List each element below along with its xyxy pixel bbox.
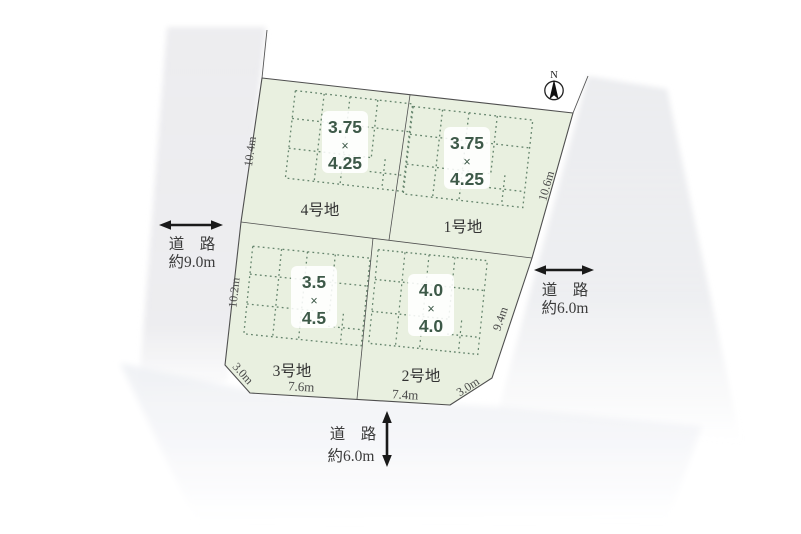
road-left-title: 道 路 xyxy=(169,235,216,253)
plot4-name: 4号地 xyxy=(301,201,340,219)
plot3-name: 3号地 xyxy=(273,362,312,380)
site-plan-canvas: 3.75 × 4.25 3.75 × 4.25 3.5 × 4.5 4.0 × … xyxy=(0,0,801,534)
plot2-name: 2号地 xyxy=(402,367,441,385)
plot3-dim-height: 4.5 xyxy=(302,308,327,328)
plot2-dim-height: 4.0 xyxy=(419,316,444,336)
plot4-dim-width: 3.75 xyxy=(328,117,362,137)
site-plan-diagram: 3.75 × 4.25 3.75 × 4.25 3.5 × 4.5 4.0 × … xyxy=(0,0,801,534)
road-bottom-width: 約6.0m xyxy=(328,447,375,465)
plot1-dim-separator: × xyxy=(463,155,470,169)
plot3-dim-width: 3.5 xyxy=(302,272,327,292)
plot1-dim-width: 3.75 xyxy=(450,133,484,153)
north-label: N xyxy=(550,70,558,81)
road-right-width: 約6.0m xyxy=(542,299,589,317)
north-compass-icon: N xyxy=(545,70,563,100)
plot4-dim-height: 4.25 xyxy=(328,153,362,173)
plot2-dim-width: 4.0 xyxy=(419,280,444,300)
plot2-dim-separator: × xyxy=(427,302,434,316)
dimension-box-plot1: 3.75 × 4.25 xyxy=(444,127,490,189)
dimension-box-plot4: 3.75 × 4.25 xyxy=(322,111,368,173)
edge-label-bottom-right: 7.4m xyxy=(392,386,419,402)
plot4-dim-separator: × xyxy=(341,139,348,153)
dimension-box-plot3: 3.5 × 4.5 xyxy=(291,266,337,328)
plot1-name: 1号地 xyxy=(444,218,483,236)
road-left-width: 約9.0m xyxy=(169,253,216,271)
plot1-dim-height: 4.25 xyxy=(450,169,484,189)
road-bottom-title: 道 路 xyxy=(330,425,377,443)
plot3-dim-separator: × xyxy=(310,294,317,308)
road-right-title: 道 路 xyxy=(542,281,589,299)
edge-label-bottom-left: 7.6m xyxy=(288,378,315,394)
dimension-box-plot2: 4.0 × 4.0 xyxy=(408,274,454,336)
